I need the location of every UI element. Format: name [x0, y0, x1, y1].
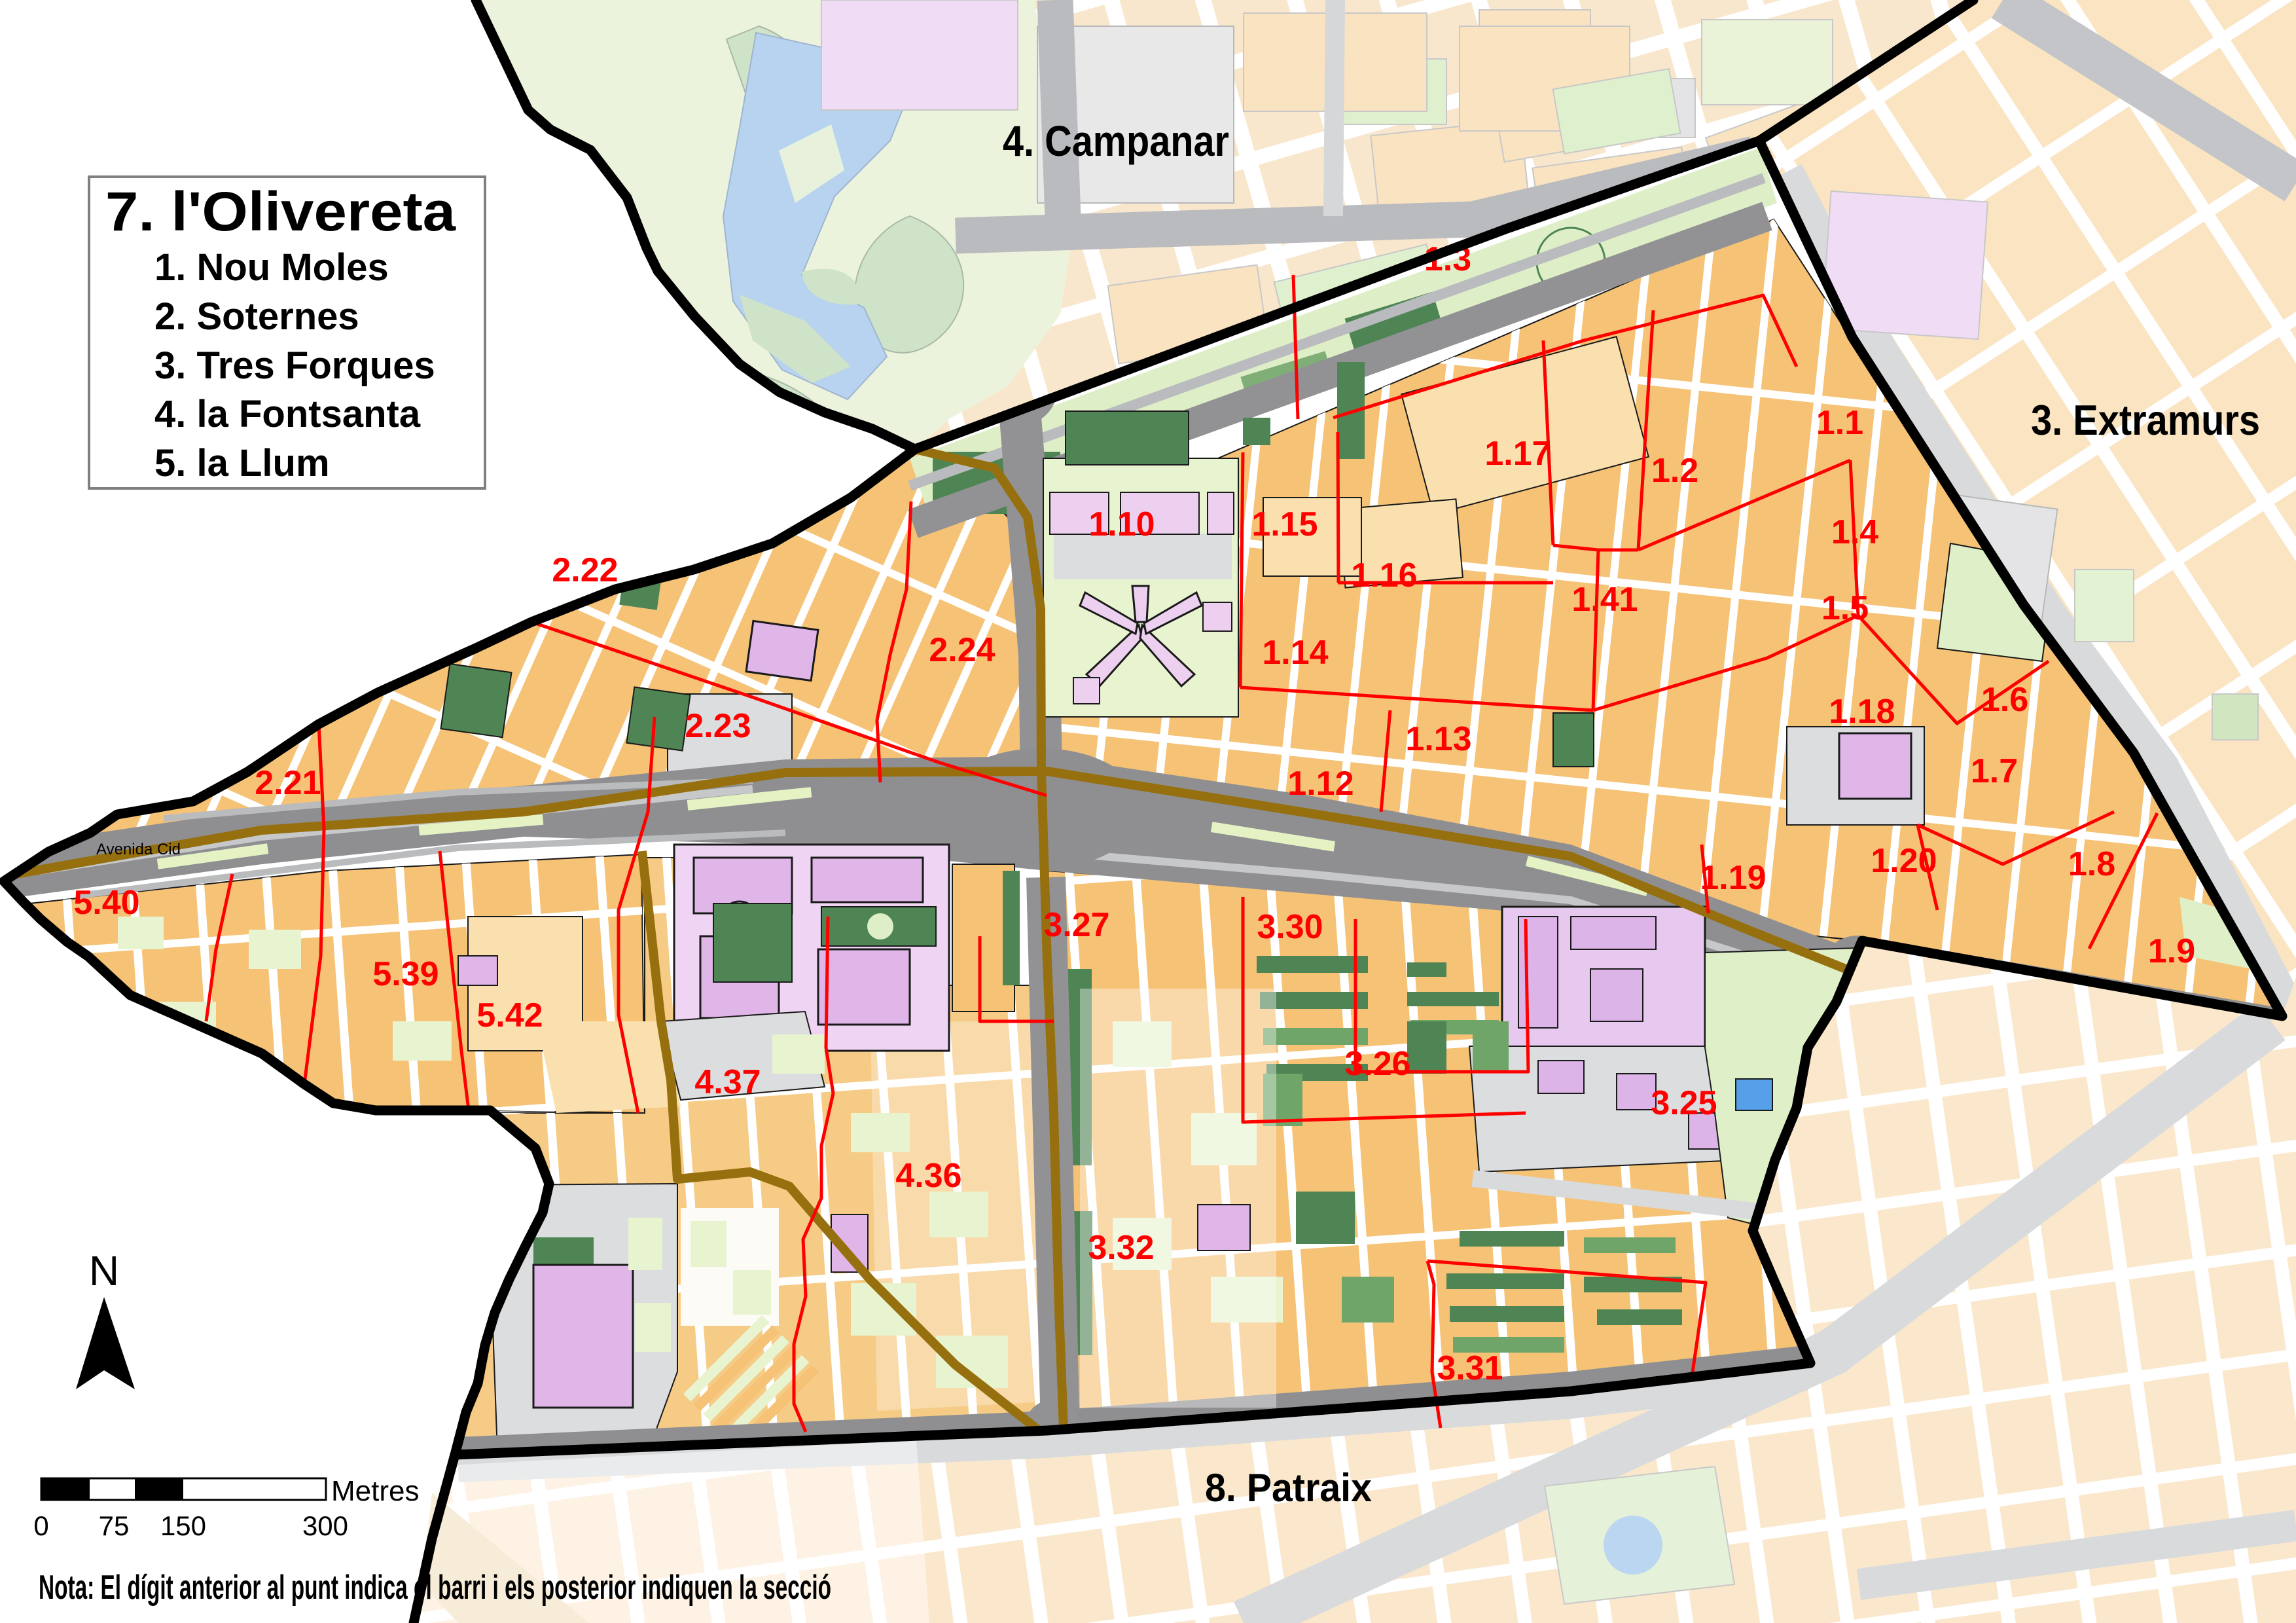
- svg-text:Nota: El dígit anterior al pun: Nota: El dígit anterior al punt indica e…: [39, 1569, 831, 1607]
- svg-text:5. la Llum: 5. la Llum: [154, 442, 330, 484]
- svg-text:1. Nou Moles: 1. Nou Moles: [154, 246, 389, 289]
- svg-text:1.13: 1.13: [1405, 720, 1471, 758]
- svg-text:1.2: 1.2: [1651, 452, 1698, 490]
- svg-text:5.39: 5.39: [372, 955, 439, 993]
- svg-text:1.5: 1.5: [1821, 589, 1869, 627]
- svg-text:75: 75: [99, 1510, 130, 1541]
- svg-text:3.31: 3.31: [1437, 1349, 1503, 1387]
- svg-text:5.40: 5.40: [73, 884, 139, 922]
- svg-text:5.42: 5.42: [476, 996, 543, 1034]
- svg-text:2. Soternes: 2. Soternes: [154, 295, 359, 338]
- svg-text:1.4: 1.4: [1831, 513, 1878, 551]
- svg-text:3.25: 3.25: [1651, 1084, 1717, 1122]
- svg-text:1.17: 1.17: [1484, 435, 1551, 473]
- svg-text:1.19: 1.19: [1700, 859, 1766, 897]
- svg-text:0: 0: [33, 1510, 48, 1541]
- svg-text:1.7: 1.7: [1971, 752, 2018, 790]
- svg-text:7. l'Olivereta: 7. l'Olivereta: [105, 181, 456, 242]
- svg-text:1.6: 1.6: [1981, 681, 2028, 719]
- svg-text:1.20: 1.20: [1871, 842, 1937, 880]
- svg-text:1.9: 1.9: [2148, 932, 2195, 970]
- svg-text:Avenida Cid: Avenida Cid: [96, 841, 181, 858]
- svg-text:2.23: 2.23: [685, 707, 751, 745]
- svg-text:1.12: 1.12: [1287, 765, 1354, 803]
- svg-text:2.21: 2.21: [255, 764, 321, 802]
- svg-text:4.37: 4.37: [694, 1063, 761, 1101]
- svg-text:1.15: 1.15: [1251, 505, 1318, 543]
- svg-text:8. Patraix: 8. Patraix: [1205, 1466, 1372, 1510]
- svg-text:1.8: 1.8: [2068, 845, 2115, 883]
- svg-text:3.30: 3.30: [1257, 908, 1323, 946]
- svg-text:1.18: 1.18: [1829, 693, 1895, 731]
- svg-text:300: 300: [302, 1510, 348, 1541]
- svg-text:1.16: 1.16: [1351, 556, 1417, 594]
- svg-text:2.22: 2.22: [552, 551, 618, 589]
- svg-text:4. Campanar: 4. Campanar: [1003, 117, 1229, 165]
- svg-text:3.26: 3.26: [1344, 1045, 1410, 1083]
- svg-text:4.36: 4.36: [895, 1157, 961, 1195]
- svg-text:4. la Fontsanta: 4. la Fontsanta: [154, 393, 421, 435]
- svg-text:3.27: 3.27: [1043, 906, 1109, 944]
- svg-text:1.1: 1.1: [1816, 404, 1863, 442]
- svg-text:N: N: [89, 1247, 119, 1294]
- svg-text:1.10: 1.10: [1088, 505, 1155, 543]
- svg-text:1.14: 1.14: [1262, 634, 1328, 672]
- svg-text:150: 150: [160, 1510, 206, 1541]
- svg-text:3.32: 3.32: [1088, 1229, 1154, 1267]
- svg-text:3. Extramurs: 3. Extramurs: [2031, 396, 2260, 444]
- svg-text:2.24: 2.24: [929, 631, 995, 669]
- svg-text:1.41: 1.41: [1571, 581, 1638, 619]
- svg-text:3. Tres Forques: 3. Tres Forques: [154, 344, 435, 387]
- svg-text:Metres: Metres: [331, 1475, 419, 1507]
